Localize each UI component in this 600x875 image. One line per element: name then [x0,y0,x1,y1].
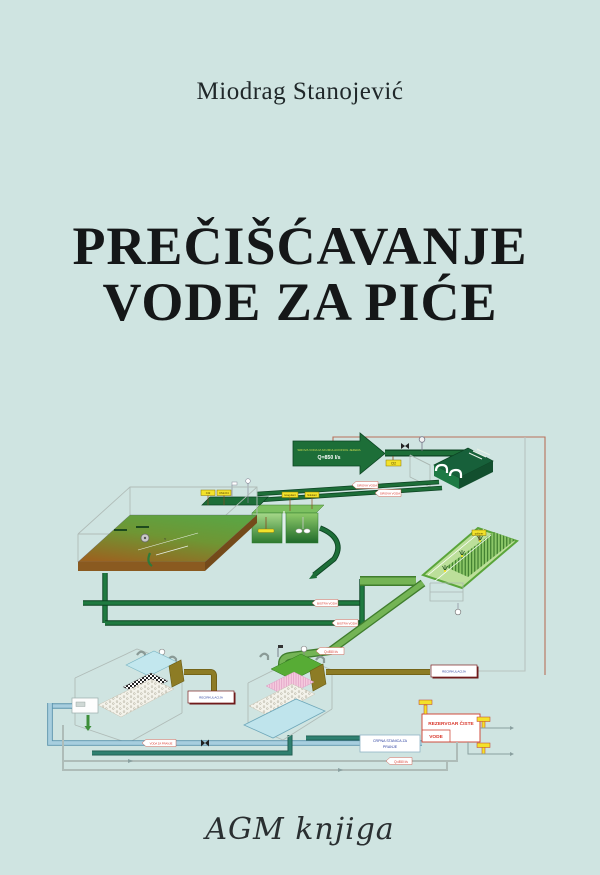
valve-icon [401,443,405,449]
chemical-sign-label: koagulant [284,493,296,497]
gauge-icon [455,609,461,615]
flow-label-text: BISTRA VODA [337,622,357,626]
flow-label-text: BISTRA VODA [317,602,337,606]
propeller-icon [296,529,302,533]
chemical-sign-label: flokulant [307,493,317,497]
flag-icon [232,482,237,485]
clarified-water-pipes: BISTRA VODA BISTRA VODA [83,573,416,627]
recirculation-label-2: RECIRKULACIJA [442,670,466,674]
water-treatment-diagram: SIROVA VODA IZ AKUMULACIONOG JEZERA Q=85… [38,425,562,797]
flow-label-text: Q=850 l/s [394,760,408,764]
sand-filter-1: RECIRKULACIJA [72,649,236,743]
flow-label-text: SIROVA VODA [380,492,400,496]
title-line-2: VODE ZA PIĆE [0,274,600,330]
flow-label-text: Q=850 l/s [324,650,338,654]
chemical-sign-label: Cl2 [391,462,396,466]
reservoir-label-1: REZERVOAR ČISTE [428,720,474,727]
chemical-sign-label: Cl2 [206,491,211,495]
flow-label-text: VODA ZA PRANJE [150,742,173,746]
pump-station-label-1: CRPNA STANICA ZA [373,739,408,743]
flocculation-basin: polimer [423,528,517,615]
gauge-icon [301,646,307,652]
chemical-sign-label: polimer [475,531,484,535]
book-cover: Miodrag Stanojević PREČIŠĆAVANJE VODE ZA… [0,0,600,875]
flow-label-text: SIROVA VODA [357,484,377,488]
inflow-arrow: SIROVA VODA IZ AKUMULACIONOG JEZERA Q=85… [293,433,385,474]
inlet-pipe-icon [260,654,268,660]
gauge-icon [419,437,425,443]
title-line-1: PREČIŠĆAVANJE [0,218,600,274]
chlorinator-icon [477,743,490,754]
paddle-mixer-icon [258,529,274,533]
inflow-text-1: SIROVA VODA IZ AKUMULACIONOG JEZERA [297,448,360,452]
clean-water-reservoir: REZERVOAR ČISTE VODE [419,700,514,756]
chemical-sign-label: KMnO4 [219,491,229,495]
reservoir-label-2: VODE [429,734,443,740]
publisher-logo: AGM knjiga [0,812,600,847]
book-title: PREČIŠĆAVANJE VODE ZA PIĆE [0,218,600,330]
pump-station-label-2: PRANJE [383,745,398,749]
gauge-icon [246,479,251,484]
propeller-icon [304,529,310,533]
recirculation-label-1: RECIRKULACIJA [199,696,223,700]
valve-icon [405,443,409,449]
filter-water-layer [126,651,177,676]
chlorinator-icon [419,700,432,714]
author-name: Miodrag Stanojević [0,78,600,106]
flag-icon [278,645,283,648]
wash-pump-station: CRPNA STANICA ZA PRANJE [360,735,420,752]
inflow-text-2: Q=850 l/s [318,455,341,461]
